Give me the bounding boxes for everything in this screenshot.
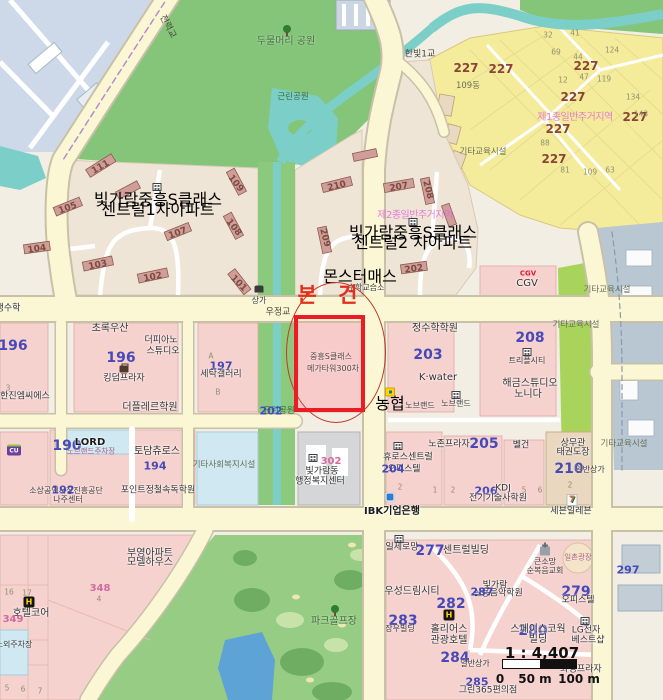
scale-tick-100: 100 m [558,672,600,686]
scale-bar-graphic [502,659,577,669]
scale-tick-0: 0 [496,672,504,686]
scale-segment-black [540,660,577,668]
map-canvas[interactable]: 두물머리 공원근린공원전력교한빛1교109동기타교육시설제1종일반주거지역227… [0,0,663,700]
scale-bar: 1 : 4,407 0 50 m 100 m [492,642,612,688]
base-map [0,0,663,700]
scale-tick-50: 50 m [518,672,551,686]
scale-segment-white [503,660,540,668]
